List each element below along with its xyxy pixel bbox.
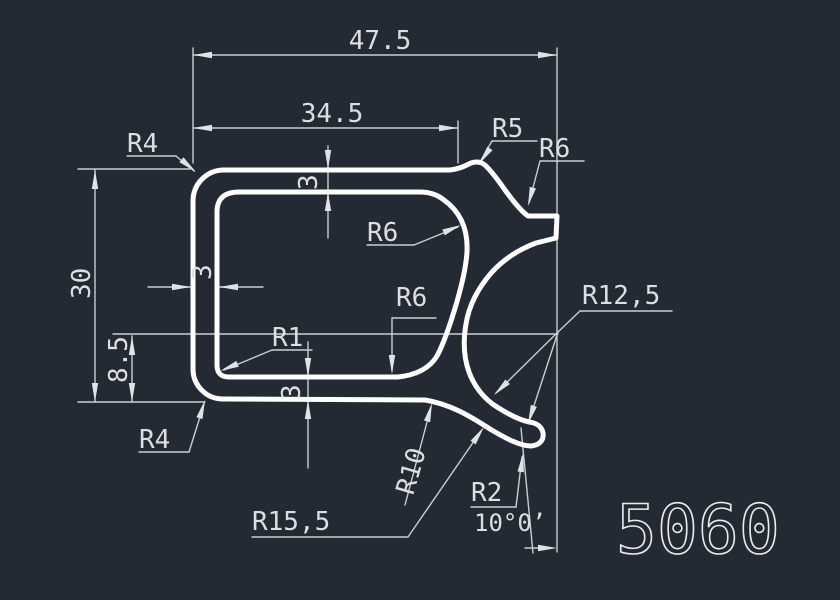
dimension-arrowhead <box>325 192 331 211</box>
dimension-arrowhead <box>92 383 98 402</box>
radius-label-r12-5: R12,5 <box>582 281 660 311</box>
profile-outline <box>193 162 557 446</box>
leader-r12-5-bend <box>558 311 580 332</box>
labels: 47.5 34.5 30 8.5 3 3 3 10°0’ R4 R5 R6 R6… <box>67 26 780 570</box>
dimension-arrowhead <box>193 125 212 131</box>
cad-drawing-canvas: 47.5 34.5 30 8.5 3 3 3 10°0’ R4 R5 R6 R6… <box>0 0 840 600</box>
radius-label-r6-top-right: R6 <box>539 134 570 164</box>
radius-label-r4-bottom: R4 <box>139 425 170 455</box>
dimension-arrowhead <box>92 170 98 189</box>
part-number: 5060 <box>616 491 780 570</box>
dimension-arrowhead <box>442 225 461 235</box>
dimension-arrowhead <box>424 403 432 422</box>
dimension-arrowhead <box>439 125 458 131</box>
profile-cavity-contour <box>217 192 467 377</box>
dim-text-wall-top: 3 <box>294 174 324 190</box>
dimension-arrowhead <box>305 400 311 419</box>
radius-label-r6-lower: R6 <box>396 283 427 313</box>
dimension-arrowhead <box>494 380 510 396</box>
dimension-arrowhead <box>389 355 395 374</box>
dim-text-overall-width: 47.5 <box>349 26 412 56</box>
radius-label-r5: R5 <box>492 114 523 144</box>
dimension-arrowhead <box>196 400 205 419</box>
dimension-arrowhead <box>219 284 238 290</box>
dimension-arrowhead <box>538 52 557 58</box>
dimension-arrowhead <box>528 187 536 206</box>
dim-text-wall-left: 3 <box>188 264 218 280</box>
dimension-arrowhead <box>129 383 135 402</box>
dim-text-inner-width: 34.5 <box>301 99 364 129</box>
dim-text-bottom-offset: 8.5 <box>104 336 134 383</box>
dimension-arrowhead <box>538 545 557 551</box>
radius-label-r6-upper: R6 <box>367 218 398 248</box>
radius-label-r15-5: R15,5 <box>252 507 330 537</box>
profile-outer-contour <box>193 162 557 446</box>
dimension-arrowhead <box>220 361 239 371</box>
radius-label-r1: R1 <box>272 323 303 353</box>
dimension-arrowhead <box>471 427 485 444</box>
dimension-arrowhead <box>172 284 191 290</box>
dim-text-overall-height: 30 <box>67 268 97 299</box>
dimension-arrowhead <box>193 52 212 58</box>
dimension-arrowhead <box>305 358 311 377</box>
dim-text-wall-bottom: 3 <box>277 384 307 400</box>
dimension-arrowhead <box>518 453 524 472</box>
radius-label-r4-top: R4 <box>127 129 158 159</box>
radius-label-r10: R10 <box>391 445 433 498</box>
radius-label-r2: R2 <box>471 478 502 508</box>
dimension-arrowhead <box>325 150 331 169</box>
dim-text-lip-angle: 10°0’ <box>474 509 546 537</box>
